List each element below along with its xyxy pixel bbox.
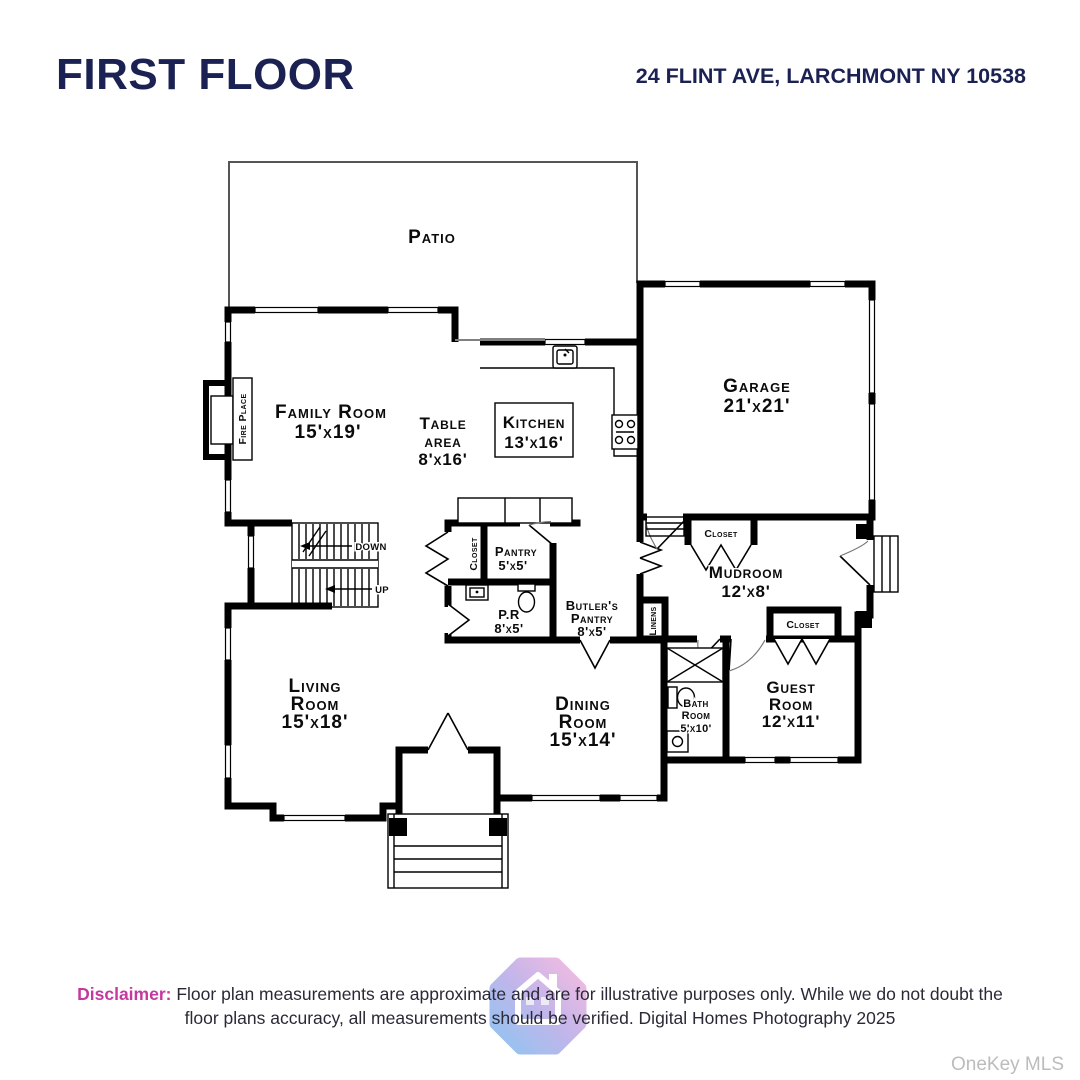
room-label-pantry: Pantry [495,544,537,559]
disclaimer-text2: floor plans accuracy, all measurements s… [185,1008,896,1028]
fireplace-label: Fire Place [237,393,249,444]
powder-room-door [448,604,469,636]
wall-joint [856,524,872,539]
room-dims-pantry: 5'x5' [498,558,527,573]
closet-label-hall: Closet [468,537,480,571]
stove-icon [612,415,638,449]
room-dims-powder: 8'x5' [494,621,523,636]
linens-label: Linens [648,606,659,635]
room-label-kitchen: Kitchen [503,413,566,432]
room-label-mudroom: Mudroom [709,563,783,582]
mls-watermark: OneKey MLS [951,1054,1064,1076]
mudroom-hall-door [640,542,661,574]
room-dims-table: 8'x16' [418,450,467,469]
room-label-table-1: Table [419,414,466,433]
kitchen-sink-icon [553,346,577,368]
room-dims-mudroom: 12'x8' [721,582,770,601]
room-label-garage: Garage [723,376,791,397]
front-porch-steps [388,814,508,888]
disclaimer-text1: Floor plan measurements are approximate … [176,984,1003,1004]
disclaimer: Disclaimer: Floor plan measurements are … [0,982,1080,1030]
closet-label-guest: Closet [786,619,820,631]
room-dims-dining: 15'x14' [550,730,617,751]
room-dims-bath: 5'x10' [680,723,711,735]
room-dims-guest: 12'x11' [762,712,821,731]
room-label-family: Family Room [275,402,387,423]
room-labels: Patio Family Room 15'x19' Table area 8'x… [275,227,820,751]
staircase: DOWN UP [292,523,389,607]
floor-plan: Fire Place [0,0,1080,1080]
room-label-powder: P.R [498,607,520,622]
guest-closet-door [774,639,830,664]
disclaimer-line1: Disclaimer: Floor plan measurements are … [0,982,1080,1006]
room-label-table-2: area [424,432,461,451]
hall-closet-door [426,532,448,586]
front-door [428,713,468,750]
room-dims-garage: 21'x21' [724,396,791,417]
butlers-pantry-door [580,640,610,668]
porch-column [489,818,507,836]
room-label-patio: Patio [408,227,456,248]
room-dims-living: 15'x18' [282,712,349,733]
room-label-bath-2: Room [682,710,711,722]
room-dims-kitchen: 13'x16' [504,433,564,452]
stairs-down-label: DOWN [355,542,386,553]
closet-label-mudroom: Closet [704,528,738,540]
disclaimer-line2: floor plans accuracy, all measurements s… [0,1006,1080,1030]
room-dims-butlers: 8'x5' [577,624,606,639]
room-label-bath-1: Bath [683,698,708,710]
side-stoop-steps [874,536,898,592]
stairs-up-label: UP [375,585,389,596]
mudroom-exterior-door [840,556,870,585]
pantry-door [529,525,553,545]
wall-joint [856,611,872,628]
room-dims-family: 15'x19' [295,422,362,443]
porch-column [389,818,407,836]
disclaimer-label: Disclaimer: [77,984,171,1004]
